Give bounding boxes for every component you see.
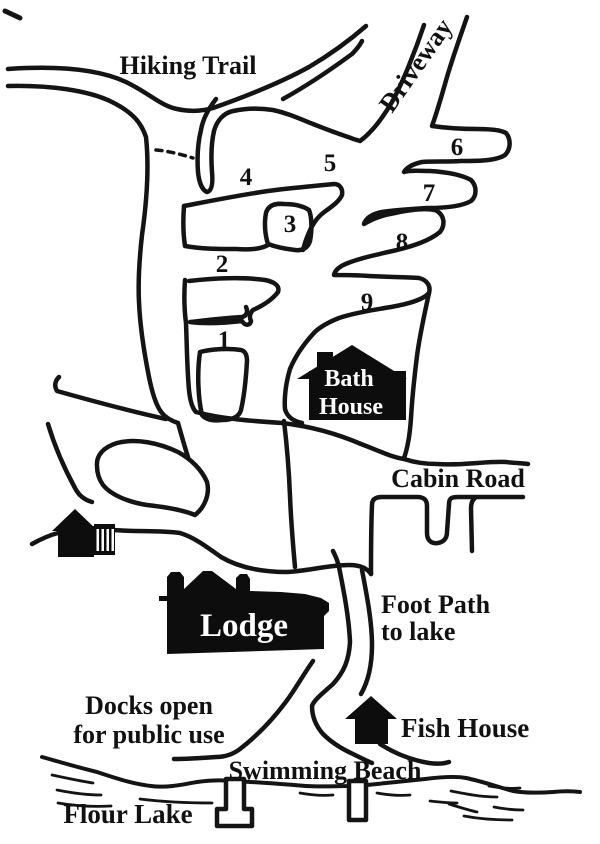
foot-path-east-edge	[361, 570, 372, 694]
public-dock-right	[349, 781, 366, 820]
campsite-block-left-bottom-edge	[183, 206, 268, 249]
central-corridor-east-edge	[284, 421, 295, 567]
campsite-9-label: 9	[361, 289, 374, 316]
campsite-4-label: 4	[240, 164, 253, 191]
shed-body	[58, 526, 94, 557]
shed-slat	[97, 529, 100, 551]
foot-path-label-line1: Foot Path	[381, 590, 491, 619]
campsite-2-label: 2	[216, 251, 229, 278]
campsite-8-label: 8	[396, 229, 409, 256]
campsite-3-label: 3	[284, 211, 297, 238]
trail-branch-upper-right	[283, 41, 362, 99]
cabin-loops-branch	[471, 498, 475, 551]
campsite-1-label: 1	[218, 327, 231, 354]
shed-slat	[107, 529, 110, 551]
bath-house-label-line2: House	[319, 394, 383, 420]
west-winding-path	[48, 424, 92, 502]
striped-shed-building	[52, 509, 115, 557]
hiking-trail-label: Hiking Trail	[119, 51, 256, 80]
clearing-loop	[97, 441, 208, 515]
foot-path-label-line2: to lake	[381, 617, 455, 646]
bath-house-label-line1: Bath	[324, 366, 373, 392]
bathhouse-road-east-edge	[404, 293, 429, 458]
campground-map: Hiking Trail Driveway Cabin Road Foot Pa…	[0, 0, 600, 844]
lodge-label: Lodge	[200, 608, 288, 644]
fish-house-label: Fish House	[401, 713, 529, 743]
swimming-beach-label: Swimming Beach	[229, 756, 422, 785]
shed-slat	[102, 529, 105, 551]
shed-slat	[112, 529, 115, 551]
flour-lake-label: Flour Lake	[63, 799, 192, 829]
corner-mark	[5, 11, 20, 18]
cabin-road-label: Cabin Road	[391, 464, 525, 493]
campsite-5-label: 5	[324, 150, 337, 177]
docks-note-line1: Docks open	[85, 691, 213, 720]
cabin-loops-chain	[371, 497, 523, 574]
map-canvas: Hiking Trail Driveway Cabin Road Foot Pa…	[0, 0, 600, 844]
campsite-7-label: 7	[423, 180, 436, 207]
trail-crossing-dashes	[156, 150, 193, 158]
campsite-6-label: 6	[451, 134, 464, 161]
fish-house-body	[355, 713, 388, 744]
docks-note-line2: for public use	[73, 720, 224, 749]
driveway-label: Driveway	[373, 13, 458, 117]
site1-loop	[198, 349, 247, 420]
fish-house-building	[345, 696, 397, 744]
shed-access-stub	[32, 533, 58, 544]
public-dock-left	[217, 779, 252, 826]
hiking-trail-lower-line	[8, 86, 178, 423]
